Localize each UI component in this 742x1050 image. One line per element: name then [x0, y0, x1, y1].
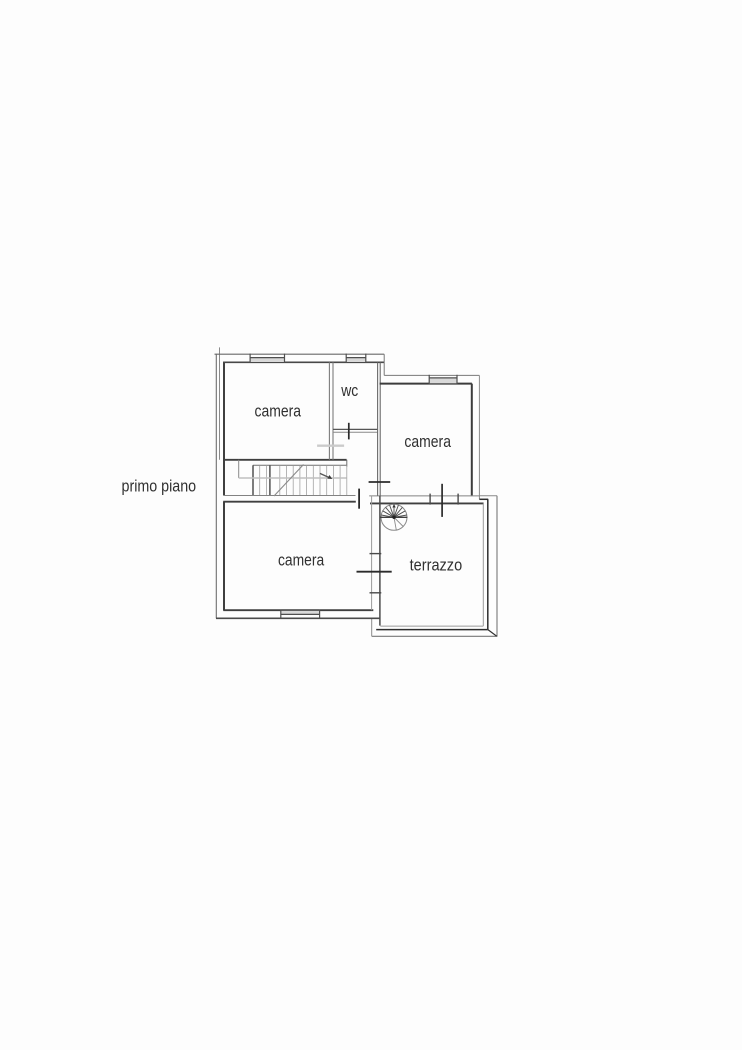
svg-text:camera: camera — [278, 551, 325, 570]
svg-text:terrazzo: terrazzo — [410, 557, 463, 575]
svg-text:camera: camera — [255, 402, 302, 421]
svg-text:primo piano: primo piano — [121, 478, 196, 496]
svg-text:camera: camera — [404, 433, 451, 452]
svg-text:wc: wc — [340, 382, 358, 401]
